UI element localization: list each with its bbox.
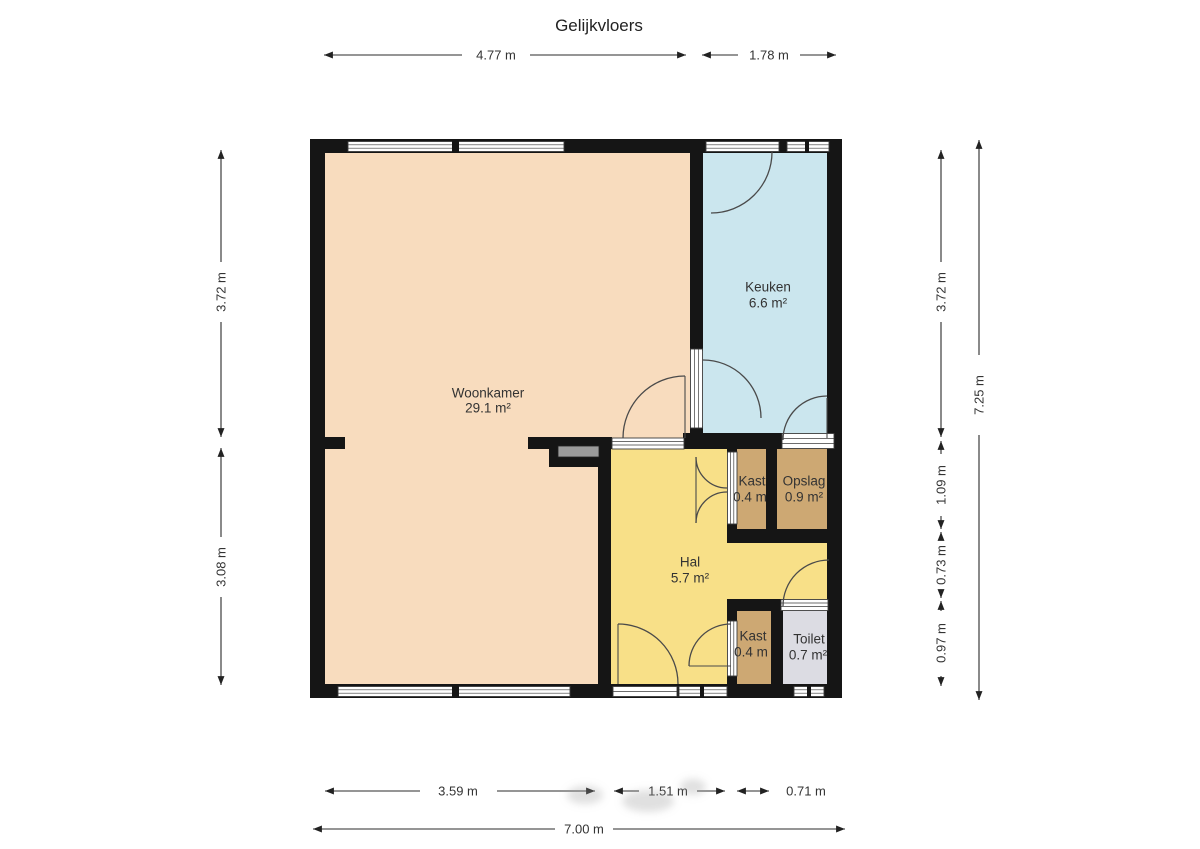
window-woonkamer-bottom: [338, 686, 570, 697]
svg-text:3.08 m: 3.08 m: [214, 547, 229, 587]
window-mullion: [700, 686, 704, 697]
label-woonkamer-area: 29.1 m²: [465, 401, 511, 416]
window-toilet-vent: [794, 686, 824, 697]
window-mullion: [452, 141, 459, 152]
dim-top-1: 1.78 m: [702, 48, 836, 63]
window-hal-bottom: [679, 686, 727, 697]
door-opening-keuken-top: [706, 142, 779, 152]
label-woonkamer-name: Woonkamer: [452, 386, 525, 401]
wall-kast-boven-cap-top: [727, 443, 737, 453]
label-kast-onder-name: Kast: [739, 629, 766, 644]
dim-left-1: 3.08 m: [214, 448, 229, 685]
window-mullion: [807, 686, 811, 697]
dim-bottom-2: 0.71 m: [737, 784, 826, 799]
door-frame-kast-boven: [728, 452, 738, 524]
wall-kast-toilet: [771, 611, 783, 698]
svg-text:1.09 m: 1.09 m: [934, 465, 949, 505]
svg-text:7.00 m: 7.00 m: [564, 822, 604, 837]
dim-top-0: 4.77 m: [324, 48, 686, 63]
room-hal-corridor: [727, 541, 829, 601]
label-kast-onder-area: 0.4 m: [734, 645, 768, 660]
chimney-inset: [558, 446, 599, 457]
wall-kast-onder-cap-bottom: [727, 675, 737, 688]
door-frame-woonkamer-keuken: [691, 349, 703, 428]
wall-left: [310, 139, 325, 698]
wall-opslag-bottom: [727, 529, 842, 543]
svg-text:4.77 m: 4.77 m: [476, 48, 516, 63]
svg-text:1.78 m: 1.78 m: [749, 48, 789, 63]
svg-text:3.72 m: 3.72 m: [214, 272, 229, 312]
dim-bottom-total: 7.00 m: [313, 822, 845, 837]
wall-mid-stub-left: [322, 437, 345, 449]
label-opslag-area: 0.9 m²: [785, 490, 824, 505]
svg-text:0.73 m: 0.73 m: [934, 545, 949, 585]
svg-text:3.72 m: 3.72 m: [934, 272, 949, 312]
dim-right-2: 0.73 m: [934, 532, 949, 598]
svg-text:0.71 m: 0.71 m: [786, 784, 826, 799]
label-keuken-name: Keuken: [745, 280, 791, 295]
window-mullion: [452, 686, 459, 697]
label-kast-boven-name: Kast: [738, 474, 765, 489]
wall-kast-onder-top: [727, 599, 783, 611]
label-toilet-area: 0.7 m²: [789, 648, 828, 663]
door-frame-toilet: [781, 600, 828, 611]
label-hal-name: Hal: [680, 555, 700, 570]
label-keuken-area: 6.6 m²: [749, 296, 788, 311]
wall-kast-onder-cap-top: [727, 611, 737, 622]
dim-right-0: 3.72 m: [934, 150, 949, 437]
wall-right: [827, 139, 842, 698]
wall-keuken-bottom-right: [834, 433, 842, 449]
wall-kast-opslag: [766, 449, 777, 530]
sill-front-door: [613, 687, 677, 697]
dim-left-0: 3.72 m: [214, 150, 229, 437]
label-kast-boven-area: 0.4 m: [733, 490, 767, 505]
label-hal-area: 5.7 m²: [671, 571, 710, 586]
dim-right-3: 0.97 m: [934, 601, 949, 686]
dim-right-total: 7.25 m: [972, 140, 987, 700]
page-title: Gelijkvloers: [555, 16, 643, 35]
window-mullion: [805, 141, 809, 152]
svg-text:3.59 m: 3.59 m: [438, 784, 478, 799]
threshold-woonkamer-hal: [612, 438, 684, 449]
floorplan-canvas: Gelijkvloers: [0, 0, 1200, 849]
wall-keuken-divider: [690, 150, 703, 351]
svg-text:7.25 m: 7.25 m: [972, 375, 987, 415]
window-keuken-top: [787, 141, 829, 152]
room-hal-main: [611, 443, 727, 686]
svg-text:0.97 m: 0.97 m: [934, 623, 949, 663]
label-toilet-name: Toilet: [793, 632, 825, 647]
dim-bottom-0: 3.59 m: [325, 784, 595, 799]
label-opslag-name: Opslag: [783, 474, 826, 489]
wall-hal-vertical: [598, 449, 611, 698]
door-opening-opslag: [782, 434, 834, 449]
dim-right-1: 1.09 m: [934, 441, 949, 529]
window-woonkamer-top: [348, 141, 564, 152]
